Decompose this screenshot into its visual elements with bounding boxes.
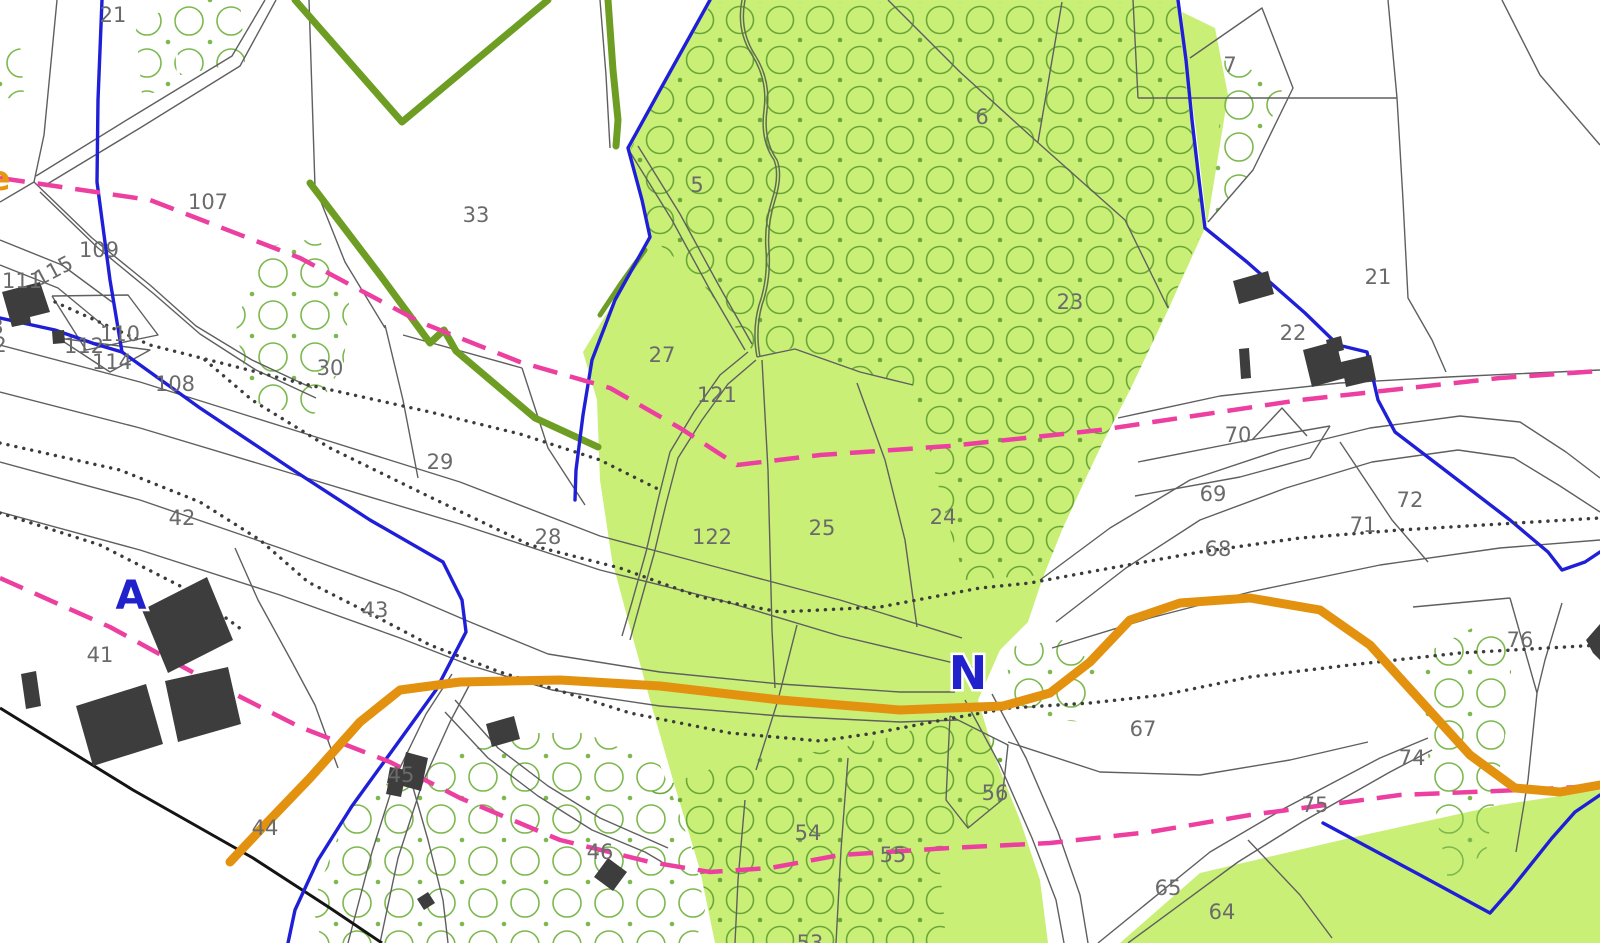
parcel-label-114: 114 xyxy=(92,350,132,374)
parcel-label-76: 76 xyxy=(1507,628,1534,652)
parcel-label-21: 21 xyxy=(100,3,127,27)
parcel-label-56: 56 xyxy=(982,781,1009,805)
zone-letter-a: A xyxy=(116,573,147,619)
parcel-label-46: 46 xyxy=(587,840,614,864)
parcel-label-69: 69 xyxy=(1200,482,1227,506)
parcel-label-64: 64 xyxy=(1209,900,1236,924)
parcel-label-44: 44 xyxy=(252,816,279,840)
map-canvas[interactable]: 2110710911111511011211410832333029284243… xyxy=(0,0,1600,943)
parcel-label-107: 107 xyxy=(188,190,228,214)
parcel-label-75: 75 xyxy=(1302,793,1329,817)
parcel-label-72: 72 xyxy=(1397,488,1424,512)
parcel-label-109: 109 xyxy=(79,238,119,262)
parcel-label-23: 23 xyxy=(1057,290,1084,314)
zone-letter-n: N xyxy=(949,646,988,700)
edge-placename-partial: e xyxy=(0,159,11,199)
parcel-label-41: 41 xyxy=(87,643,114,667)
parcel-label-25: 25 xyxy=(809,516,836,540)
parcel-label-54: 54 xyxy=(795,821,822,845)
map-viewport[interactable]: 2110710911111511011211410832333029284243… xyxy=(0,0,1600,943)
parcel-label-21: 21 xyxy=(1365,265,1392,289)
parcel-label-68: 68 xyxy=(1205,537,1232,561)
parcel-label-74: 74 xyxy=(1399,746,1426,770)
parcel-label-67: 67 xyxy=(1130,717,1157,741)
parcel-label-5: 5 xyxy=(690,173,703,197)
parcel-label-6: 6 xyxy=(975,105,988,129)
parcel-label-70: 70 xyxy=(1225,423,1252,447)
parcel-label-71: 71 xyxy=(1350,513,1377,537)
parcel-label-53: 53 xyxy=(797,931,824,943)
parcel-label-22: 22 xyxy=(1280,321,1307,345)
parcel-label-7: 7 xyxy=(1223,53,1236,77)
parcel-label-24: 24 xyxy=(930,505,957,529)
parcel-label-30: 30 xyxy=(317,356,344,380)
parcel-label-33: 33 xyxy=(463,203,490,227)
parcel-label-110: 110 xyxy=(100,322,140,346)
parcel-label-65: 65 xyxy=(1155,876,1182,900)
parcel-label-55: 55 xyxy=(880,843,907,867)
parcel-label-42: 42 xyxy=(169,506,196,530)
parcel-label-122: 122 xyxy=(692,525,732,549)
parcel-label-108: 108 xyxy=(155,372,195,396)
parcel-label-29: 29 xyxy=(427,450,454,474)
parcel-label-2: 2 xyxy=(0,333,7,357)
parcel-label-121: 121 xyxy=(697,383,737,407)
parcel-label-45: 45 xyxy=(388,763,415,787)
parcel-label-27: 27 xyxy=(649,343,676,367)
parcel-label-43: 43 xyxy=(362,598,389,622)
parcel-label-28: 28 xyxy=(535,525,562,549)
